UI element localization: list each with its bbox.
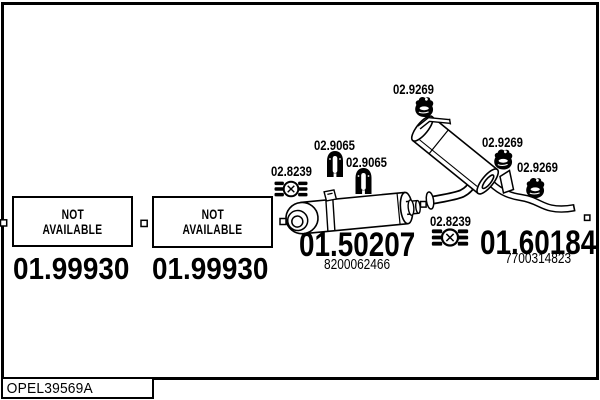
rubber-mount-icon (526, 178, 544, 198)
label-clamp-front: 02.8239 (271, 165, 312, 179)
exhaust-clamp-icon (432, 229, 468, 245)
not-available-text: AVAILABLE (43, 222, 103, 237)
not-available-text: NOT (61, 207, 84, 222)
catalog-code: OPEL39569A (3, 380, 93, 397)
catalog-page: NOT AVAILABLE NOT AVAILABLE 01.99930 01.… (0, 0, 600, 400)
part-number-front-2: 01.99930 (152, 253, 268, 284)
rubber-mount-icon (415, 97, 433, 117)
connector-square (141, 220, 147, 226)
connector-square (1, 220, 7, 226)
not-available-box-1: NOT AVAILABLE (12, 196, 133, 247)
catalog-code-box: OPEL39569A (1, 377, 154, 399)
center-muffler-ref-number: 8200062466 (324, 258, 390, 273)
tailpipe-bracket (500, 171, 514, 194)
rubber-hanger-icon (327, 151, 343, 177)
exhaust-clamp-icon (275, 182, 308, 197)
label-hanger-rear-1: 02.9269 (482, 136, 523, 150)
connector-square (421, 202, 427, 208)
label-hanger-mid-1: 02.9065 (314, 139, 355, 153)
connector-square (585, 215, 590, 220)
label-hanger-top: 02.9269 (393, 83, 434, 97)
label-hanger-rear-2: 02.9269 (517, 161, 558, 175)
rear-muffler-ref-number: 7700314823 (505, 252, 571, 267)
rubber-hanger-icon (356, 168, 372, 194)
label-clamp-rear: 02.8239 (430, 215, 471, 229)
not-available-box-2: NOT AVAILABLE (152, 196, 273, 248)
label-hanger-mid-2: 02.9065 (346, 156, 387, 170)
rubber-mount-icon (494, 150, 512, 170)
not-available-text: AVAILABLE (183, 222, 243, 237)
not-available-text: NOT (201, 207, 224, 222)
part-number-front-1: 01.99930 (13, 253, 129, 284)
connector-square (280, 219, 286, 225)
